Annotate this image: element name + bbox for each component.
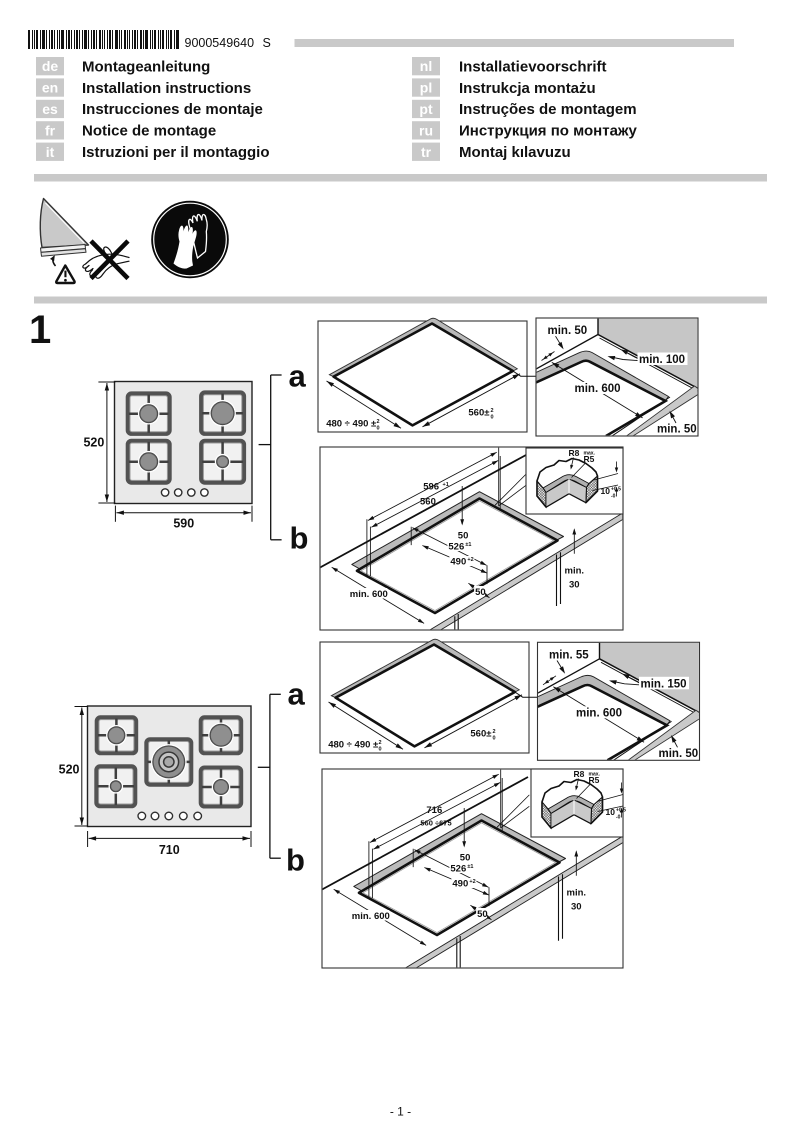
svg-text:min. 600: min. 600 (352, 911, 390, 922)
svg-text:526: 526 (450, 864, 466, 875)
svg-text:min. 150: min. 150 (641, 678, 687, 690)
svg-text:a: a (288, 677, 306, 712)
svg-text:2: 2 (377, 419, 380, 425)
svg-text:b: b (286, 843, 305, 878)
svg-text:S: S (263, 36, 271, 50)
svg-text:es: es (42, 101, 58, 117)
svg-text:Montageanleitung: Montageanleitung (82, 58, 210, 75)
svg-text:Инструкция по монтажу: Инструкция по монтажу (459, 123, 638, 140)
svg-text:520: 520 (59, 763, 80, 777)
svg-text:R8: R8 (574, 769, 585, 779)
svg-text:min. 50: min. 50 (657, 424, 697, 436)
svg-text:min.: min. (567, 888, 587, 899)
svg-text:de: de (42, 58, 59, 74)
svg-text:50: 50 (458, 531, 469, 542)
svg-text:Instruções de montagem: Instruções de montagem (459, 101, 637, 118)
svg-text:a: a (289, 359, 307, 394)
svg-text:596: 596 (423, 481, 439, 492)
svg-text:min. 600: min. 600 (575, 383, 621, 395)
svg-text:526: 526 (448, 542, 464, 553)
svg-text:pt: pt (419, 101, 433, 117)
svg-text:-0: -0 (616, 815, 621, 821)
svg-text:min. 100: min. 100 (639, 354, 685, 366)
svg-text:716: 716 (426, 805, 442, 816)
svg-text:ru: ru (419, 122, 433, 138)
svg-text:it: it (46, 144, 55, 160)
svg-text:Istruzioni per il montaggio: Istruzioni per il montaggio (82, 144, 270, 161)
svg-text:b: b (290, 521, 309, 556)
svg-text:2: 2 (379, 740, 382, 746)
svg-text:±1: ±1 (465, 542, 471, 548)
svg-text:min.: min. (565, 566, 585, 577)
svg-text:560±: 560± (468, 408, 489, 419)
svg-text:560 ÷675: 560 ÷675 (420, 819, 451, 828)
svg-text:710: 710 (159, 843, 180, 857)
svg-text:10: 10 (601, 486, 611, 496)
svg-text:R5: R5 (584, 454, 595, 464)
svg-text:min. 600: min. 600 (350, 589, 388, 600)
svg-text:0: 0 (493, 736, 496, 742)
svg-text:+0,5: +0,5 (611, 487, 621, 493)
svg-text:30: 30 (569, 580, 580, 591)
svg-text:R8: R8 (569, 448, 580, 458)
svg-text:Notice de montage: Notice de montage (82, 123, 216, 140)
svg-text:480 ÷ 490 ±: 480 ÷ 490 ± (328, 740, 378, 751)
svg-text:-0: -0 (611, 494, 616, 500)
svg-text:tr: tr (421, 144, 432, 160)
svg-text:50: 50 (475, 587, 486, 598)
svg-text:490: 490 (450, 557, 466, 568)
svg-text:0: 0 (377, 426, 380, 432)
svg-text:520: 520 (83, 436, 104, 450)
svg-text:50: 50 (477, 909, 488, 920)
svg-text:en: en (42, 80, 58, 96)
svg-text:R5: R5 (589, 775, 600, 785)
svg-text:0: 0 (379, 747, 382, 753)
svg-text:1: 1 (29, 308, 51, 352)
svg-text:560: 560 (420, 497, 436, 508)
svg-text:2: 2 (493, 729, 496, 735)
svg-text:+0,5: +0,5 (616, 808, 626, 814)
svg-text:+1: +1 (443, 482, 449, 488)
svg-text:Montaj kılavuzu: Montaj kılavuzu (459, 144, 571, 161)
svg-text:pl: pl (420, 80, 432, 96)
svg-text:9000549640: 9000549640 (185, 36, 255, 50)
svg-text:560±: 560± (470, 729, 491, 740)
svg-text:min. 600: min. 600 (576, 708, 622, 720)
svg-text:Instrukcja montażu: Instrukcja montażu (459, 80, 596, 97)
svg-text:0: 0 (491, 415, 494, 421)
svg-text:10: 10 (606, 807, 616, 817)
svg-text:2: 2 (491, 408, 494, 414)
svg-text:Installatievoorschrift: Installatievoorschrift (459, 58, 607, 75)
svg-text:Installation instructions: Installation instructions (82, 80, 251, 97)
svg-text:min. 55: min. 55 (549, 649, 589, 661)
svg-text:±1: ±1 (467, 864, 473, 870)
svg-text:490: 490 (452, 879, 468, 890)
svg-text:590: 590 (173, 516, 194, 530)
svg-text:30: 30 (571, 902, 582, 913)
svg-text:fr: fr (45, 122, 56, 138)
svg-text:480 ÷ 490 ±: 480 ÷ 490 ± (326, 419, 376, 430)
svg-text:min. 50: min. 50 (548, 325, 588, 337)
svg-text:Instrucciones de montaje: Instrucciones de montaje (82, 101, 263, 118)
svg-text:+2: +2 (469, 879, 475, 885)
svg-text:50: 50 (460, 853, 471, 864)
svg-text:nl: nl (420, 58, 432, 74)
svg-text:+2: +2 (467, 557, 473, 563)
svg-text:min. 50: min. 50 (659, 748, 699, 760)
svg-text:- 1 -: - 1 - (390, 1105, 411, 1119)
